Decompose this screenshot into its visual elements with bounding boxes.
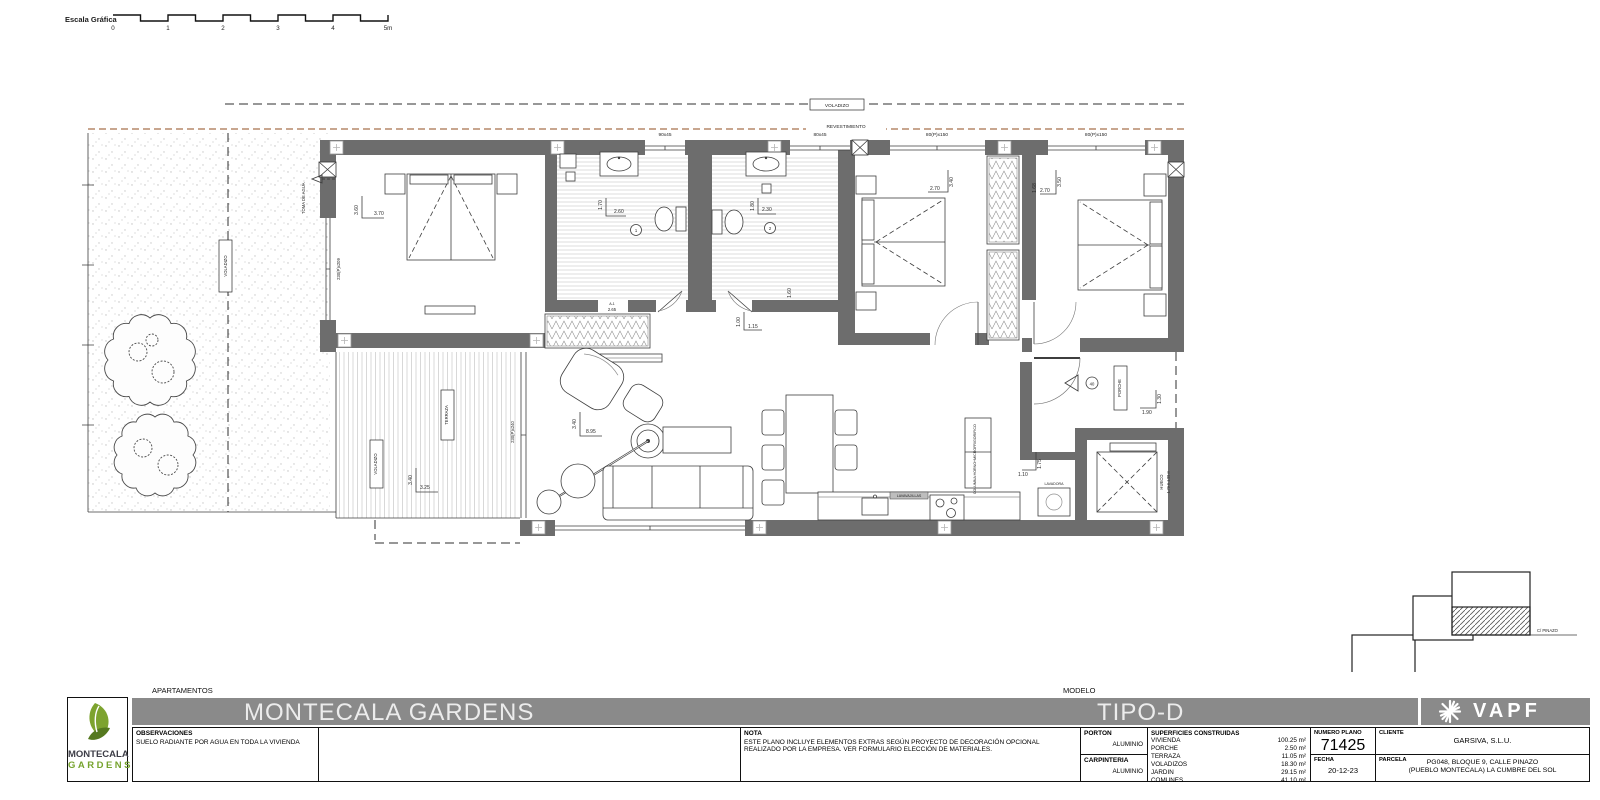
window-label-bed2: 80(P)x150 xyxy=(926,132,948,138)
window-label-master: 230(P)x209 xyxy=(336,258,341,280)
dim-master-v: 3.60 xyxy=(354,205,360,215)
site-key-plan: C/ PINAZO xyxy=(1330,572,1577,672)
carpinteria-label: CARPINTERIA xyxy=(1081,755,1147,764)
entry-number: 40 xyxy=(1090,381,1095,386)
nota-line2: REALIZADO POR LA EMPRESA. VER FORMULARIO… xyxy=(741,746,1080,753)
observaciones-label: OBSERVACIONES xyxy=(133,728,318,737)
porche-label: PORCHE xyxy=(1117,379,1122,397)
laundry: LAVADORA xyxy=(1036,478,1072,516)
fecha-label: FECHA xyxy=(1311,755,1375,763)
nota-cell: NOTA ESTE PLANO INCLUYE ELEMENTOS EXTRAS… xyxy=(740,727,1081,782)
window-label-bed3: 80(P)x150 xyxy=(1085,132,1107,138)
nota-label: NOTA xyxy=(741,728,1080,737)
sup-name: COMUNES xyxy=(1151,777,1183,785)
numero-plano-value: 71425 xyxy=(1311,737,1375,755)
sup-value: 100.25 m² xyxy=(1278,737,1306,745)
sup-name: VOLADIZOS xyxy=(1151,761,1187,769)
sup-name: JARDIN xyxy=(1151,769,1174,777)
dim-hall-right: 1.60 xyxy=(787,288,793,298)
sup-value: 11.05 m² xyxy=(1282,753,1306,761)
cliente-cell: CLIENTE GARSIVA, S.L.U. xyxy=(1375,727,1590,755)
dim-bed3-extra: 1.68 xyxy=(1032,183,1038,193)
parcela-label: PARCELA xyxy=(1376,755,1407,763)
fridge-label: FRIGORIFICO xyxy=(973,424,977,448)
parcela-line1: PG048, BLOQUE 9, CALLE PINAZO xyxy=(1376,759,1589,767)
vapf-logo-text: VAPF xyxy=(1473,700,1541,723)
logo-text-1: MONTECALA xyxy=(68,749,127,760)
logo-text-2: GARDENS xyxy=(68,760,127,771)
sup-name: PORCHE xyxy=(1151,745,1178,753)
hueco-label: HUECO xyxy=(1159,474,1164,490)
revestimiento-label: REVESTIMIENTO xyxy=(826,124,865,130)
scale-tick: 2 xyxy=(221,25,225,32)
cliente-label: CLIENTE xyxy=(1376,728,1589,736)
dim-hall-v: 1.00 xyxy=(736,317,742,327)
nota-line1: ESTE PLANO INCLUYE ELEMENTOS EXTRAS SEGÚ… xyxy=(741,737,1080,746)
street-label: C/ PINAZO xyxy=(1537,628,1559,633)
cliente-value: GARSIVA, S.L.U. xyxy=(1376,736,1589,745)
vapf-sun-icon xyxy=(1435,698,1465,725)
parcela-cell: PARCELA PG048, BLOQUE 9, CALLE PINAZO (P… xyxy=(1375,754,1590,782)
carpinteria-cell: CARPINTERIA ALUMINIO xyxy=(1080,754,1148,782)
carpinteria-value: ALUMINIO xyxy=(1081,764,1147,775)
modelo-label: MODELO xyxy=(1063,686,1096,695)
project-title: MONTECALA GARDENS xyxy=(244,699,534,727)
vapf-band: VAPF xyxy=(1421,698,1590,725)
drawing-area: Escala Gráfica 0 1 2 3 4 5m VOLADIZO xyxy=(0,0,1600,672)
modelo-value: TIPO-D xyxy=(1097,699,1184,727)
porton-cell: PORTON ALUMINIO xyxy=(1080,727,1148,755)
dim-bed3-h: 2.70 xyxy=(1040,188,1050,194)
dim-bath1-v: 1.70 xyxy=(598,200,604,210)
scale-tick: 4 xyxy=(331,25,335,32)
montecala-logo: MONTECALA GARDENS xyxy=(67,697,128,782)
voladizo-label-top: VOLADIZO xyxy=(825,103,850,109)
dim-porch-v: 1.30 xyxy=(1157,394,1163,404)
plan-sheet: Escala Gráfica 0 1 2 3 4 5m VOLADIZO xyxy=(0,0,1600,800)
wardrobe-dim: 2.65 xyxy=(608,307,617,312)
dim-porch-h: 1.90 xyxy=(1142,410,1152,416)
leaf-icon xyxy=(80,700,116,742)
voladizo-label-garden: VOLADIZO xyxy=(223,255,228,277)
superficies-cell: SUPERFICIES CONSTRUIDAS VIVIENDA100.25 m… xyxy=(1147,727,1311,782)
dim-bed3-v: 3.50 xyxy=(1057,177,1063,187)
sup-value: 29.15 m² xyxy=(1281,769,1306,777)
oven-column-label: COLUMNA HORNO+MICRO xyxy=(973,448,977,494)
dim-living-v: 3.40 xyxy=(572,419,578,429)
window-label-bath1: 90x45 xyxy=(658,132,671,138)
voladizo-label-terraza: VOLADIZO xyxy=(373,453,378,475)
dim-bath1-h: 2.60 xyxy=(614,209,624,215)
garden-area: VOLADIZO xyxy=(82,133,336,512)
title-band: MONTECALA GARDENS TIPO-D xyxy=(132,698,1418,725)
tree xyxy=(114,414,196,496)
hueco-size: 1.79 X 1.55 m xyxy=(1167,471,1171,493)
toma-agua-label: TOMA DE AGUA xyxy=(301,182,306,214)
superficies-label: SUPERFICIES CONSTRUIDAS xyxy=(1148,728,1310,737)
wardrobe-code: A-1 xyxy=(609,302,615,306)
numero-plano-cell: NUMERO PLANO 71425 xyxy=(1310,727,1376,755)
dim-master-h: 3.70 xyxy=(374,211,384,217)
dishwasher-label: LAVAVAJILLAS xyxy=(897,494,922,498)
observaciones-cell: OBSERVACIONES SUELO RADIANTE POR AGUA EN… xyxy=(132,727,319,782)
sup-name: TERRAZA xyxy=(1151,753,1180,761)
fecha-cell: FECHA 20-12-23 xyxy=(1310,754,1376,782)
dim-living-h: 8.95 xyxy=(586,429,596,435)
dim-bath2-v: 1.80 xyxy=(750,201,756,211)
tree xyxy=(105,315,196,406)
scale-tick: 0 xyxy=(111,25,115,32)
porton-value: ALUMINIO xyxy=(1081,737,1147,748)
scale-bar-label: Escala Gráfica xyxy=(65,15,118,24)
dim-terraza-h: 3.25 xyxy=(420,485,430,491)
apartamentos-label: APARTAMENTOS xyxy=(152,686,213,695)
dim-bed2-h: 2.70 xyxy=(930,186,940,192)
washer-label: LAVADORA xyxy=(1044,482,1064,486)
dim-kitchen-v: 1.75 xyxy=(1037,459,1043,469)
scale-bar: Escala Gráfica 0 1 2 3 4 5m xyxy=(65,15,392,32)
fecha-value: 20-12-23 xyxy=(1311,766,1375,775)
scale-tick: 3 xyxy=(276,25,280,32)
sup-value: 18.30 m² xyxy=(1281,761,1306,769)
window-label-terraza: 230(P)x240 xyxy=(510,421,515,443)
empty-cell xyxy=(318,727,741,782)
parcela-line2: (PUEBLO MONTECALA) LA CUMBRE DEL SOL xyxy=(1376,767,1589,775)
dim-bed2-v: 3.40 xyxy=(949,177,955,187)
window-label-bath2: 80x45 xyxy=(813,132,826,138)
dim-bath2-h: 2.30 xyxy=(762,207,772,213)
dim-terraza-v: 3.40 xyxy=(408,475,414,485)
terraza-label: TERRAZA xyxy=(444,405,449,425)
dim-kitchen-h: 1.10 xyxy=(1018,472,1028,478)
sup-value: 2.50 m² xyxy=(1285,745,1306,753)
observaciones-text: SUELO RADIANTE POR AGUA EN TODA LA VIVIE… xyxy=(133,737,318,746)
dim-hall-h: 1.15 xyxy=(748,324,758,330)
scale-tick: 5m xyxy=(384,25,393,32)
scale-tick: 1 xyxy=(166,25,170,32)
sup-name: VIVIENDA xyxy=(1151,737,1180,745)
sup-value: 41.10 m² xyxy=(1281,777,1306,785)
porton-label: PORTON xyxy=(1081,728,1147,737)
numero-plano-label: NUMERO PLANO xyxy=(1311,728,1375,736)
